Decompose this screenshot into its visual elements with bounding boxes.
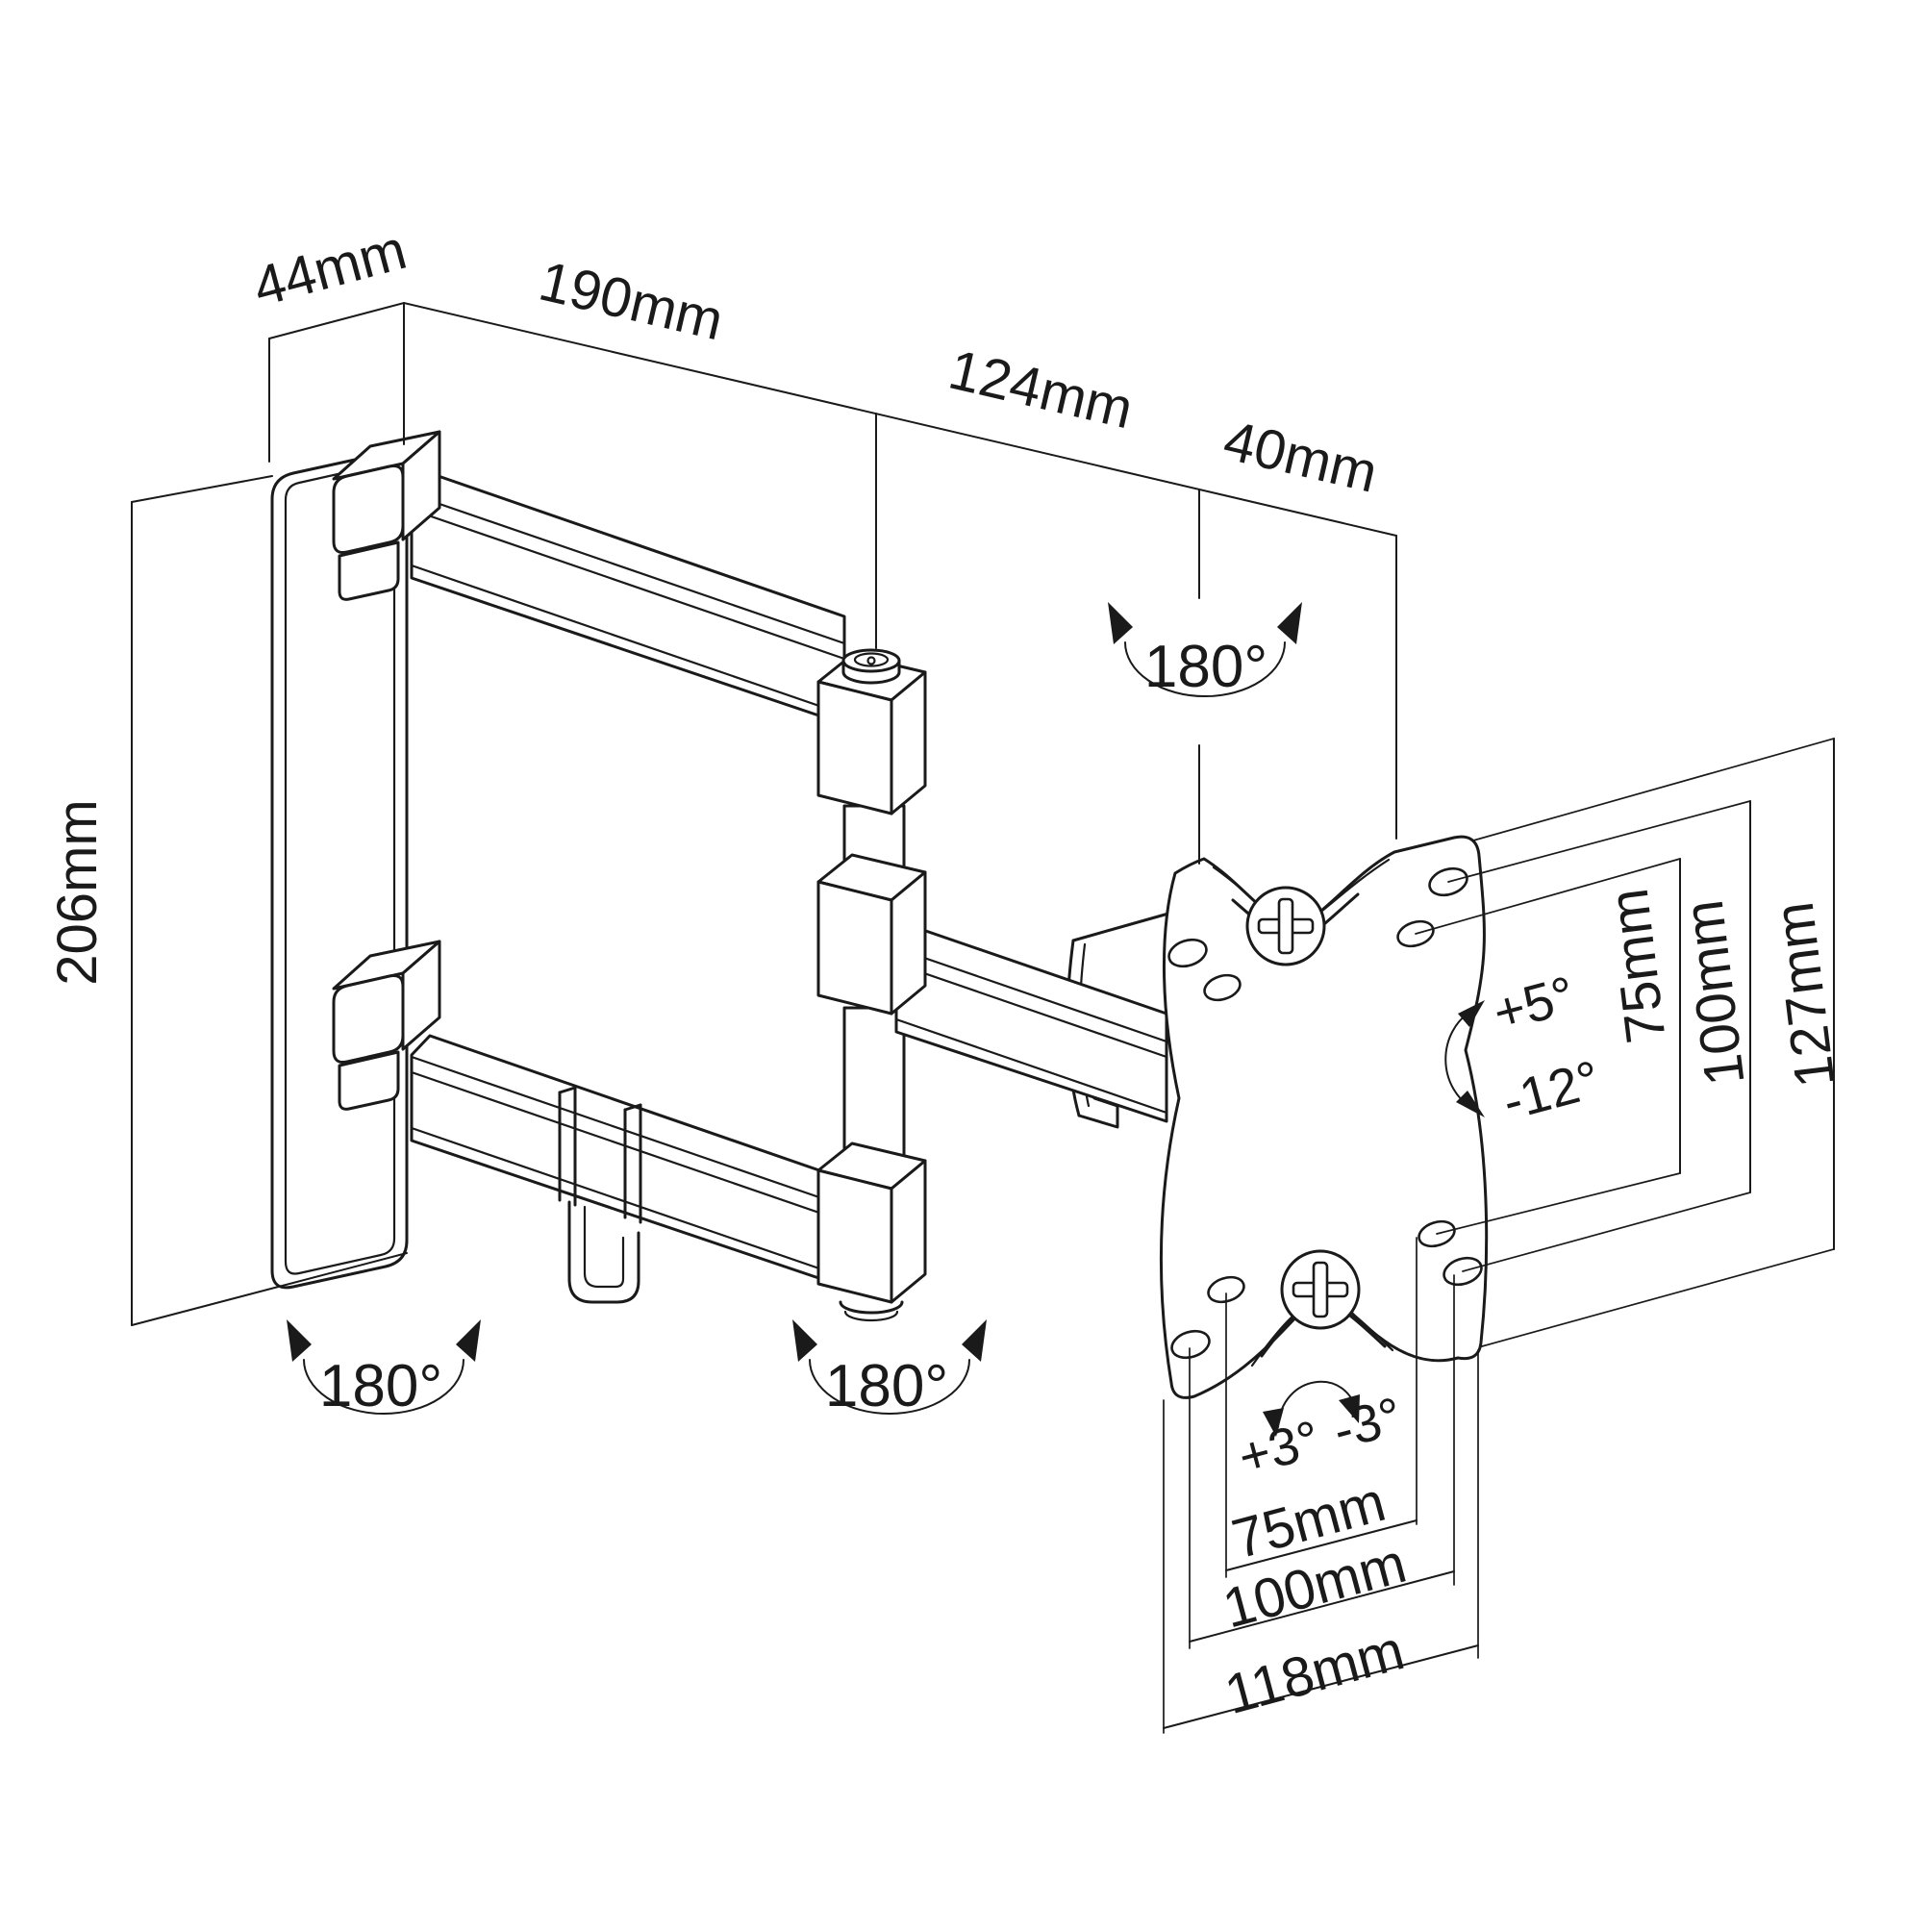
plate-screw-top: [1247, 888, 1324, 965]
lower-arm: [412, 1036, 844, 1287]
angle-label-minus3: -3°: [1327, 1386, 1409, 1461]
dim-label-206mm: 206mm: [46, 799, 109, 985]
plate-screw-bottom: [1282, 1251, 1359, 1328]
rotation-arrow-icon: [1277, 602, 1302, 644]
rotation-arrow-icon: [287, 1319, 312, 1362]
angle-label-plus5: +5°: [1487, 965, 1581, 1043]
dim-label-100mm-vertical: 100mm: [1672, 896, 1757, 1089]
dim-label-75mm-vertical: 75mm: [1597, 885, 1678, 1046]
dim-label-190mm: 190mm: [534, 250, 729, 353]
rotation-arrow-icon: [962, 1319, 987, 1362]
dim-label-40mm: 40mm: [1218, 409, 1384, 505]
angle-label-plus3: +3°: [1232, 1409, 1326, 1488]
rotation-symbol-mid-joint: 180°: [792, 1319, 987, 1419]
forearm-joint-block: [818, 855, 925, 1014]
dim-label-44mm: 44mm: [247, 218, 413, 318]
wall-mount-diagram: 44mm 190mm 124mm 40mm 206mm 75mm 100mm 1…: [0, 0, 1932, 1932]
rotation-symbol-plate: 180°: [1108, 602, 1302, 700]
angle-label-180-wall: 180°: [319, 1353, 442, 1419]
technical-drawing-page: 44mm 190mm 124mm 40mm 206mm 75mm 100mm 1…: [0, 0, 1932, 1932]
angle-label-180-plate: 180°: [1144, 634, 1267, 700]
rotation-symbol-wall-joint: 180°: [287, 1319, 481, 1419]
vesa-plate: [1162, 837, 1487, 1397]
rotation-arrow-icon: [792, 1319, 817, 1362]
pivot-screw: [843, 650, 899, 683]
lower-joint-end-cap: [841, 1302, 902, 1313]
roll-annotation: +3° -3°: [1232, 1382, 1408, 1488]
upper-arm: [412, 473, 844, 724]
forearm: [896, 927, 1167, 1121]
angle-label-180-mid: 180°: [825, 1353, 948, 1419]
rotation-arrow-icon: [1108, 602, 1133, 644]
angle-label-minus12: -12°: [1496, 1049, 1606, 1132]
rotation-arrow-icon: [456, 1319, 481, 1362]
lower-joint-block: [818, 1143, 925, 1320]
elbow-joint-block: [818, 650, 925, 814]
dim-label-124mm: 124mm: [943, 339, 1139, 441]
